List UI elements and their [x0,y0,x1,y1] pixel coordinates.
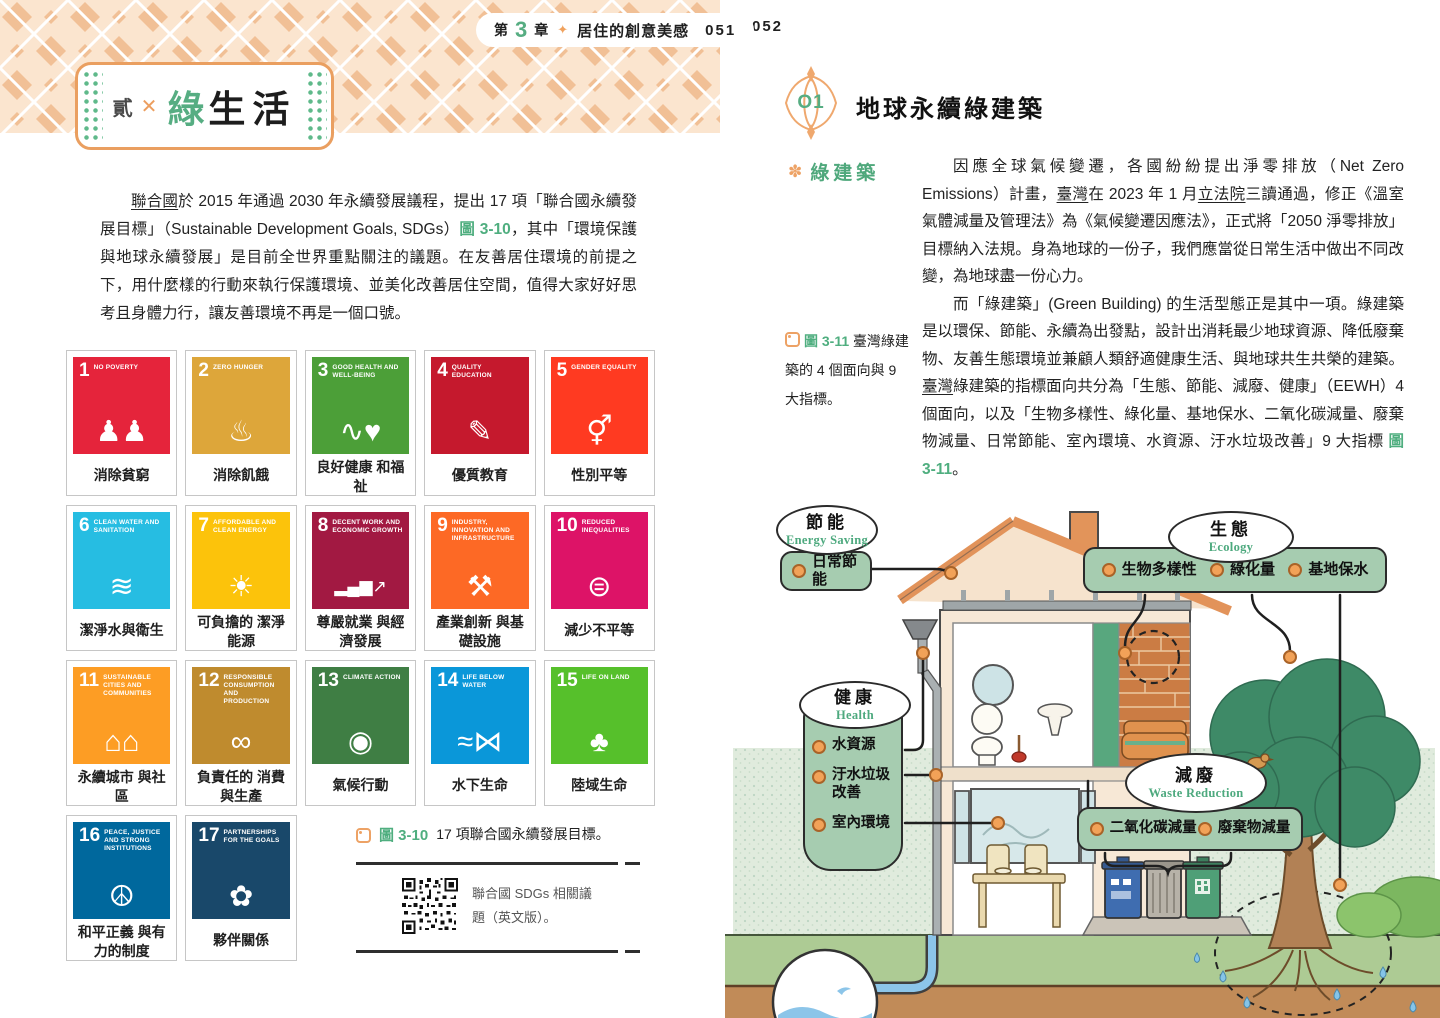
energy-saving-bubble: 節能 Energy Saving [776,505,878,555]
bullet-dot-icon [1288,563,1302,577]
bullet-dot-icon [812,818,826,832]
water-glass-icon: ≋ [73,573,170,602]
section-title-card: 貳 ✕ 綠 生活 [75,62,334,150]
sdg-card-11: 11SUSTAINABLE CITIES AND COMMUNITIES⌂⌂永續… [66,660,177,806]
living-room [1093,623,1190,767]
bullet-dot-icon [792,564,806,578]
sdg-card-9: 9INDUSTRY, INNOVATION AND INFRASTRUCTURE… [424,505,535,651]
figure-icon [785,332,800,347]
sdg-card-2: 2ZERO HUNGER♨消除飢餓 [185,350,296,496]
sdg-card-1: 1NO POVERTY♟♟消除貧窮 [66,350,177,496]
bullet-dot-icon [1090,822,1104,836]
paragraph-1: 因應全球氣候變遷，各國紛紛提出淨零排放（Net Zero Emissions）計… [922,153,1404,291]
flower-icon: ✽ [788,162,802,182]
figure-text: 17 項聯合國永續發展目標。 [436,824,609,844]
pulse-heart-icon: ∿♥ [312,418,409,447]
sdg-card-12: 12RESPONSIBLE CONSUMPTION AND PRODUCTION… [185,660,296,806]
qr-note-text: 聯合國 SDGs 相關議題（英文版）。 [472,882,600,930]
page-number-right: 052 [752,18,783,35]
qr-note-block: 聯合國 SDGs 相關議題（英文版）。 [402,878,600,934]
indicator-indoor-environment: 室內環境 [812,815,894,832]
sun-power-icon: ☀ [192,573,289,602]
dove-gavel-icon: ☮ [73,883,170,912]
sdg-card-13: 13CLIMATE ACTION◉氣候行動 [305,660,416,806]
sdg-card-17: 17PARTNERSHIPS FOR THE GOALS✿夥伴關係 [185,815,296,961]
bullet-dot-icon [812,770,826,784]
indicator-sewage-improvement: 汙水垃圾改善 [812,767,894,802]
dot-pattern-left [82,70,103,142]
bullet-dot-icon [812,740,826,754]
sdg-card-15: 15LIFE ON LAND♣陸域生命 [544,660,655,806]
steaming-bowl-icon: ♨ [192,418,289,447]
sdg-card-4: 4QUALITY EDUCATION✎優質教育 [424,350,535,496]
page-title: 地球永續綠建築 [856,89,1045,124]
interlocked-rings-icon: ✿ [192,883,289,912]
chapter-suffix: 章 [534,20,548,40]
waste-reduction-bubble: 減廢 Waste Reduction [1125,753,1267,813]
sdg-card-10: 10REDUCED INEQUALITIES⊜減少不平等 [544,505,655,651]
divider-rule-top [356,862,640,865]
chapter-badge-number: O1 [782,92,840,114]
book-spread: 第 3 章 ✦ 居住的創意美感 051 貳 ✕ 綠 生活 聯合國於 2015 年… [0,0,1440,1018]
sdg-card-7: 7AFFORDABLE AND CLEAN ENERGY☀可負擔的 潔淨能源 [185,505,296,651]
indicator-greenery: 綠化量 [1210,561,1275,579]
bathroom [953,623,1093,767]
figure-label: 圖 3-10 [379,824,428,845]
indicator-waste-reduction: 廢棄物減量 [1198,820,1291,837]
section-title-green: 綠 [167,79,208,133]
sdg-card-6: 6CLEAN WATER AND SANITATION≋潔淨水與衛生 [66,505,177,651]
indicator-soil-water-retention: 基地保水 [1288,561,1368,579]
growth-chart-icon: ▂▄▆↗ [312,578,409,595]
mirror [973,665,1013,705]
family-icon: ♟♟ [73,418,170,447]
section-index: 貳 [113,92,133,121]
ecology-bubble: 生態 Ecology [1168,511,1294,563]
industry-cubes-icon: ⚒ [431,573,528,602]
figure-3-11-caption: 圖 3-11 臺灣綠建築的 4 個面向與 9 大指標。 [785,327,911,414]
city-buildings-icon: ⌂⌂ [73,728,170,757]
sdg-card-16: 16PEACE, JUSTICE AND STRONG INSTITUTIONS… [66,815,177,961]
paragraph-2: 而「綠建築」(Green Building) 的生活型態正是其中一項。綠建築是以… [922,291,1404,484]
body-paragraphs: 因應全球氣候變遷，各國紛紛提出淨零排放（Net Zero Emissions）計… [922,153,1404,483]
sdg-card-5: 5GENDER EQUALITY⚥性別平等 [544,350,655,496]
infinity-loop-icon: ∞ [192,728,289,757]
sdg-card-14: 14LIFE BELOW WATER≈⋈水下生命 [424,660,535,806]
dining-room [953,781,1095,935]
section-title-rest: 生活 [208,79,296,133]
health-bubble: 健康 Health [799,681,911,729]
platform [1083,917,1251,935]
sdg-grid: 1NO POVERTY♟♟消除貧窮 2ZERO HUNGER♨消除飢餓 3GOO… [66,350,655,961]
cross-icon: ✕ [141,94,158,119]
chapter-prefix: 第 [494,20,508,40]
indicator-water-resources: 水資源 [812,737,894,754]
qr-code [402,878,458,934]
chapter-number: 3 [515,17,527,43]
sparkle-icon: ✦ [557,22,568,38]
chapter-header: 第 3 章 ✦ 居住的創意美感 051 [476,13,754,47]
tree-icon: ♣ [551,728,648,757]
bullet-dot-icon [1198,822,1212,836]
dot-pattern-right [306,70,327,142]
funnel [903,620,937,639]
eye-globe-icon: ◉ [312,728,409,757]
green-building-label: ✽ 綠建築 [788,158,879,185]
sdg-card-3: 3GOOD HEALTH AND WELL-BEING∿♥良好健康 和福祉 [305,350,416,496]
trash-bin-gray [1144,861,1184,918]
book-pencil-icon: ✎ [431,418,528,447]
divider-rule-bottom [356,950,640,953]
fish-waves-icon: ≈⋈ [431,728,528,757]
green-wall [1093,623,1119,767]
indicator-daily-energy: 日常節能 [792,553,860,589]
indicator-biodiversity: 生物多樣性 [1102,561,1197,579]
sdg-card-8: 8DECENT WORK AND ECONOMIC GROWTH▂▄▆↗尊嚴就業… [305,505,416,651]
gender-equality-icon: ⚥ [551,418,648,447]
figure-icon [356,828,371,843]
figure-3-10-caption: 圖 3-10 17 項聯合國永續發展目標。 [356,824,646,845]
green-building-diagram: 節能 Energy Saving 日常節能 生態 Ecology 生物多樣性 綠… [725,505,1440,1018]
bullet-dot-icon [1102,563,1116,577]
page-number-left: 051 [705,22,736,39]
bullet-dot-icon [1210,563,1224,577]
indicator-co2-reduction: 二氧化碳減量 [1090,820,1197,837]
equality-arrows-icon: ⊜ [551,573,648,602]
chapter-title: 居住的創意美感 [577,20,689,41]
energy-saving-box: 日常節能 [780,551,872,591]
intro-paragraph: 聯合國於 2015 年通過 2030 年永續發展議程，提出 17 項「聯合國永續… [100,188,637,328]
waste-reduction-box: 二氧化碳減量 廢棄物減量 [1077,807,1303,851]
